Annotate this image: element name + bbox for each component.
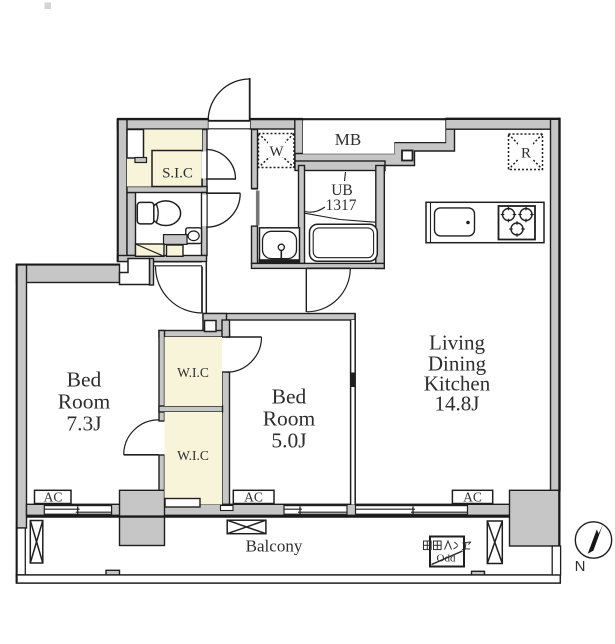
svg-text:7.3J: 7.3J [66,412,101,436]
svg-text:Odd: Odd [437,553,456,565]
svg-text:W: W [269,144,284,160]
svg-text:W.I.C: W.I.C [177,448,209,463]
svg-text:Room: Room [58,390,111,414]
svg-text:5.0J: 5.0J [271,429,306,453]
svg-text:MB: MB [335,130,361,149]
svg-text:S.I.C: S.I.C [162,166,193,182]
svg-text:Balcony: Balcony [246,537,303,556]
svg-text:AC: AC [463,490,482,505]
svg-text:R: R [521,146,531,162]
svg-text:Bed: Bed [272,385,307,409]
svg-text:AC: AC [44,490,63,505]
svg-text:Room: Room [263,407,316,431]
svg-text:N: N [575,558,586,575]
svg-text:Bed: Bed [67,368,102,392]
svg-text:14.8J: 14.8J [435,392,480,416]
svg-text:AC: AC [244,490,263,505]
svg-text:1317: 1317 [326,197,357,214]
svg-text:W.I.C: W.I.C [177,365,209,380]
